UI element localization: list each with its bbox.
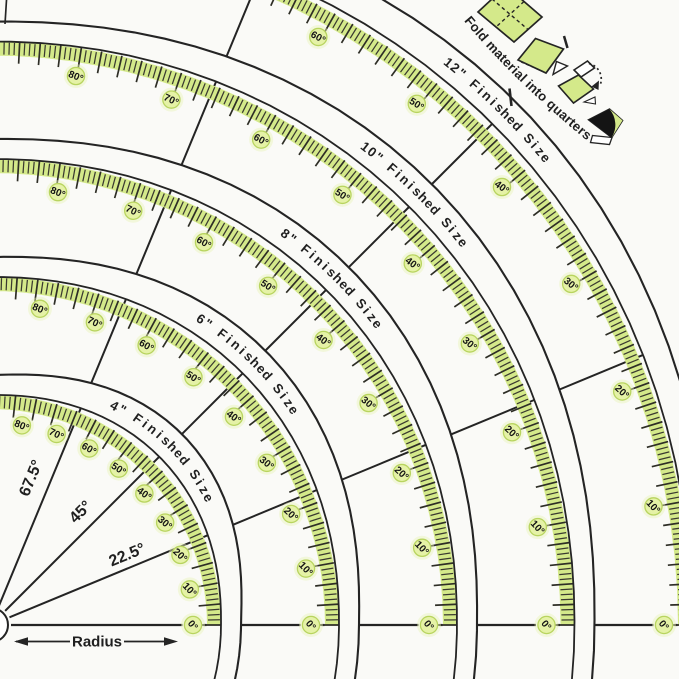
svg-text:Radius: Radius [72,634,122,651]
